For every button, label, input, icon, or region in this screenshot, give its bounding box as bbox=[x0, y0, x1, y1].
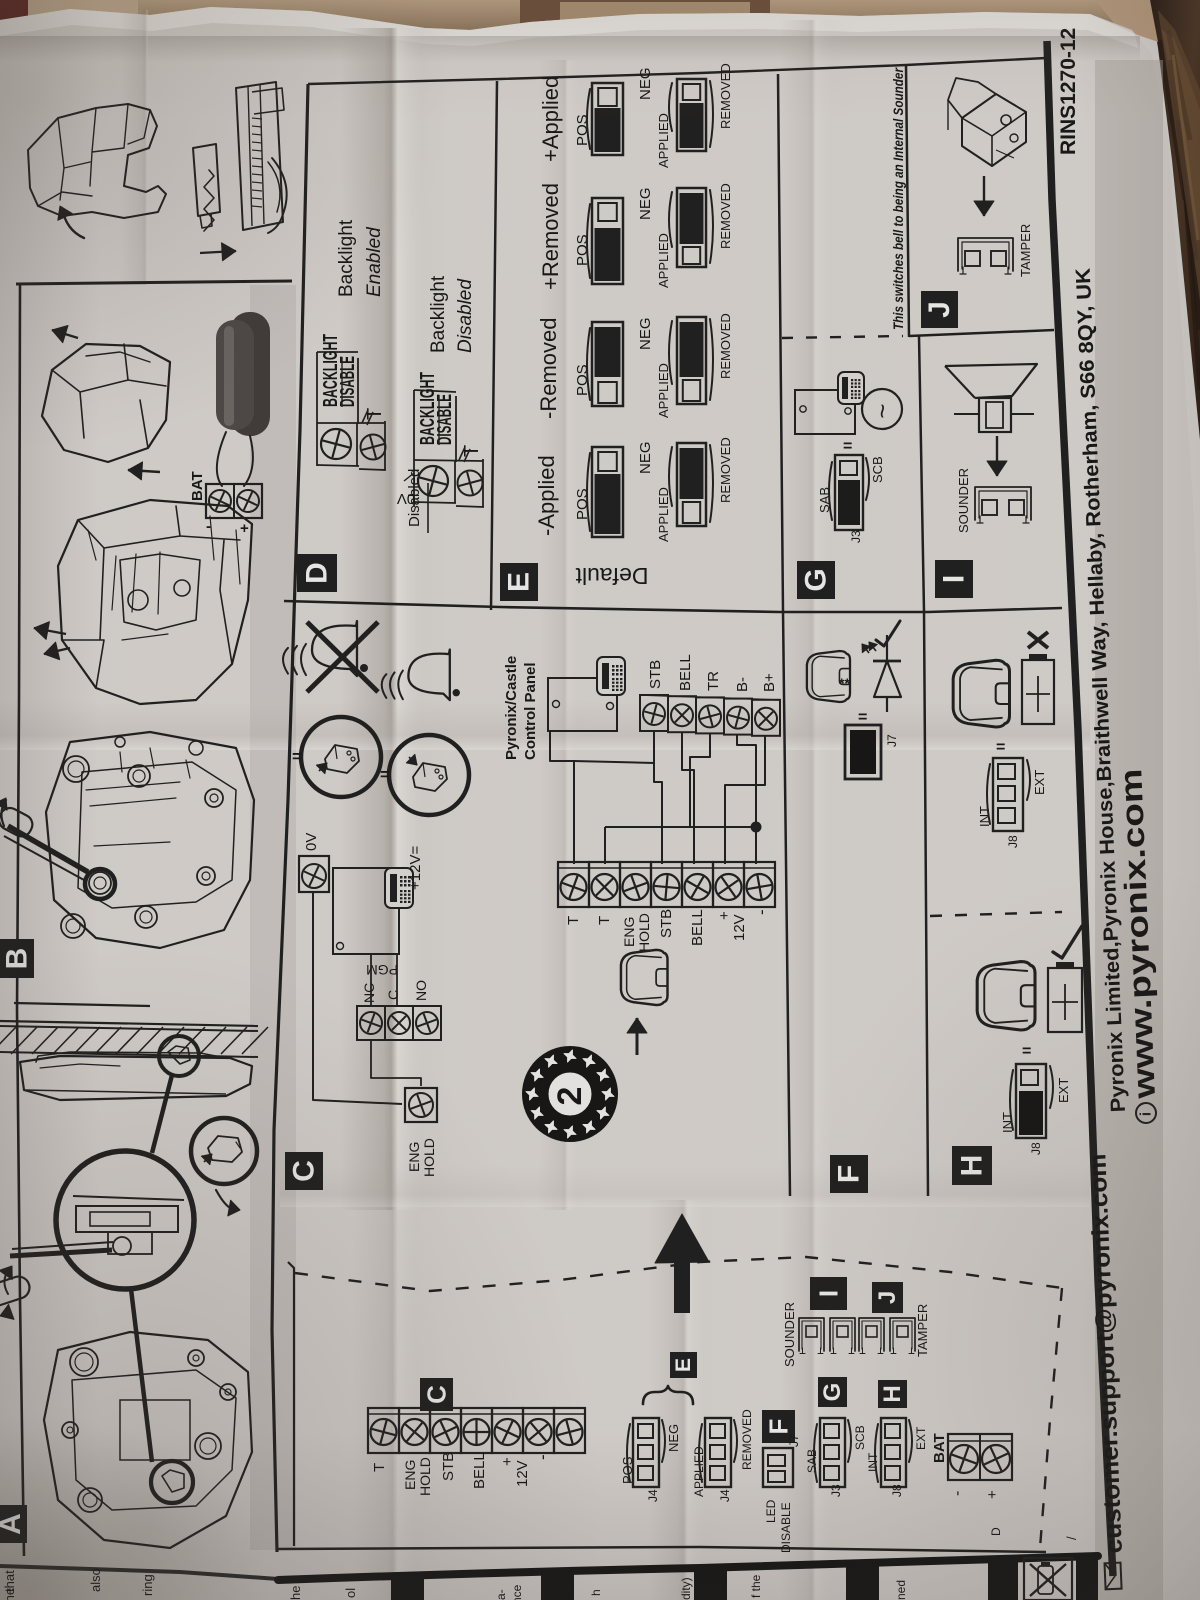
svg-text:D: D bbox=[989, 1527, 1003, 1536]
svg-text:Default: Default bbox=[575, 563, 648, 589]
svg-text:kg.: kg. bbox=[695, 1588, 709, 1600]
svg-text:nce: nce bbox=[510, 1584, 524, 1600]
svg-text:LED: LED bbox=[764, 1499, 778, 1523]
svg-text:-Removed: -Removed bbox=[536, 318, 561, 419]
svg-text:SCB: SCB bbox=[853, 1425, 867, 1450]
svg-text:T: T bbox=[596, 916, 613, 925]
svg-text:F: F bbox=[833, 1165, 866, 1183]
svg-text:h: h bbox=[589, 1589, 603, 1596]
svg-text:HOLD: HOLD bbox=[636, 913, 652, 952]
svg-text:STB: STB bbox=[658, 909, 675, 938]
svg-text:J8: J8 bbox=[1006, 835, 1020, 848]
svg-text:SOUNDER: SOUNDER bbox=[956, 468, 971, 533]
svg-text:APPLIED: APPLIED bbox=[656, 487, 671, 542]
svg-text:BELL: BELL bbox=[471, 1452, 488, 1489]
svg-text:REMOVED: REMOVED bbox=[718, 437, 733, 503]
svg-text:12V: 12V bbox=[731, 914, 748, 941]
svg-text:DISABLE: DISABLE bbox=[434, 394, 456, 445]
svg-text:Backlight: Backlight bbox=[336, 219, 357, 297]
svg-text:=: = bbox=[843, 438, 852, 455]
svg-text:also: also bbox=[88, 1568, 103, 1592]
svg-text:TAMPER: TAMPER bbox=[915, 1304, 930, 1357]
svg-text:RINS1270-12: RINS1270-12 bbox=[1057, 28, 1080, 155]
svg-text:=: = bbox=[996, 739, 1005, 756]
svg-text:APPLIED: APPLIED bbox=[656, 233, 671, 288]
svg-text:J4: J4 bbox=[718, 1489, 732, 1502]
svg-text:J: J bbox=[874, 1291, 901, 1304]
svg-text:NEG: NEG bbox=[637, 441, 654, 474]
svg-text:ENG: ENG bbox=[621, 917, 637, 947]
svg-text:f the: f the bbox=[749, 1574, 763, 1598]
svg-text:J: J bbox=[923, 301, 956, 318]
svg-text:STB: STB bbox=[440, 1452, 457, 1481]
svg-text:INT: INT bbox=[866, 1452, 880, 1472]
svg-text:12V: 12V bbox=[514, 1460, 531, 1487]
svg-text:Control Panel: Control Panel bbox=[522, 662, 539, 760]
svg-text:~: ~ bbox=[867, 403, 897, 418]
svg-text:B: B bbox=[1, 948, 34, 970]
svg-text:he: he bbox=[288, 1586, 303, 1600]
svg-text:STB: STB bbox=[647, 660, 664, 689]
svg-text:E: E bbox=[503, 572, 536, 592]
svg-text:i: i bbox=[1138, 1112, 1155, 1116]
svg-text:+12V=: +12V= bbox=[407, 846, 424, 890]
svg-text:EXT: EXT bbox=[1056, 1078, 1071, 1103]
svg-text:F: F bbox=[764, 1419, 794, 1435]
svg-text:B+: B+ bbox=[761, 673, 778, 692]
svg-text:TR: TR bbox=[705, 671, 722, 691]
svg-text:REMOVED: REMOVED bbox=[718, 183, 733, 249]
svg-text:C: C bbox=[422, 1385, 452, 1404]
svg-text:a-: a- bbox=[494, 1589, 508, 1600]
svg-text:EXT: EXT bbox=[914, 1426, 928, 1450]
svg-text:B-: B- bbox=[734, 677, 751, 692]
svg-text:I: I bbox=[938, 575, 971, 583]
svg-text:J3: J3 bbox=[829, 1484, 843, 1497]
svg-text:A: A bbox=[0, 1513, 27, 1535]
svg-text:APPLIED: APPLIED bbox=[656, 113, 671, 168]
svg-text:J7: J7 bbox=[787, 1434, 801, 1447]
svg-text:REMOVED: REMOVED bbox=[718, 63, 733, 129]
svg-text:NO: NO bbox=[413, 980, 429, 1001]
svg-text:C: C bbox=[385, 990, 401, 1000]
svg-text:DISABLE: DISABLE bbox=[337, 356, 359, 407]
svg-text:-: - bbox=[533, 1454, 552, 1460]
svg-text:=: = bbox=[292, 747, 302, 766]
svg-text:J8: J8 bbox=[890, 1484, 904, 1497]
svg-text:/: / bbox=[1064, 1536, 1079, 1540]
svg-text:DISABLE: DISABLE bbox=[779, 1502, 793, 1553]
svg-text:NEG: NEG bbox=[637, 187, 654, 220]
svg-text:BELL: BELL bbox=[677, 654, 694, 691]
svg-text:REMOVED: REMOVED bbox=[718, 313, 733, 379]
svg-text:BAT: BAT bbox=[189, 471, 206, 501]
svg-text:SOUNDER: SOUNDER bbox=[782, 1302, 797, 1367]
svg-text:the: the bbox=[2, 1588, 17, 1600]
svg-text:Pyronix/Castle: Pyronix/Castle bbox=[503, 656, 520, 760]
svg-text:ol: ol bbox=[343, 1588, 358, 1598]
svg-text:J4: J4 bbox=[646, 1489, 660, 1502]
svg-text:0V: 0V bbox=[303, 833, 320, 851]
svg-text:E: E bbox=[672, 1358, 695, 1372]
svg-text:**: ** bbox=[839, 675, 850, 691]
svg-text:+: + bbox=[984, 1490, 1001, 1499]
svg-text:ENG: ENG bbox=[402, 1460, 418, 1490]
svg-text:=: = bbox=[858, 709, 867, 726]
svg-text:I: I bbox=[814, 1290, 844, 1297]
svg-text:HOLD: HOLD bbox=[421, 1138, 437, 1177]
svg-text:NEG: NEG bbox=[666, 1424, 681, 1452]
svg-text:+Removed: +Removed bbox=[538, 183, 563, 290]
svg-text:T: T bbox=[461, 445, 483, 457]
svg-text:ENG: ENG bbox=[406, 1142, 422, 1172]
svg-text:BELL: BELL bbox=[689, 909, 706, 946]
svg-text:ned: ned bbox=[894, 1580, 908, 1600]
svg-text:d of: d of bbox=[851, 1579, 865, 1600]
svg-text:-: - bbox=[752, 909, 771, 915]
svg-text:T: T bbox=[371, 1463, 388, 1472]
svg-text:SCB: SCB bbox=[870, 456, 885, 483]
svg-text:REMOVED: REMOVED bbox=[740, 1409, 754, 1470]
svg-text:D: D bbox=[301, 562, 334, 584]
svg-text:H: H bbox=[879, 1385, 906, 1402]
svg-text:HOLD: HOLD bbox=[417, 1457, 433, 1496]
svg-text:NC: NC bbox=[361, 983, 377, 1003]
svg-text:SAB: SAB bbox=[805, 1449, 819, 1473]
svg-text:EXT: EXT bbox=[1032, 770, 1047, 795]
svg-text:Disabled: Disabled bbox=[455, 278, 476, 353]
svg-text:Enabled: Enabled bbox=[364, 226, 385, 297]
svg-text:Backlight: Backlight bbox=[428, 275, 449, 353]
svg-text:dity): dity) bbox=[679, 1577, 693, 1600]
svg-text:+Applied: +Applied bbox=[538, 76, 563, 162]
svg-text:2: 2 bbox=[551, 1087, 589, 1106]
svg-text:J3: J3 bbox=[849, 530, 863, 543]
svg-text:T: T bbox=[565, 916, 582, 925]
svg-text:H: H bbox=[956, 1155, 989, 1177]
svg-text:NEG: NEG bbox=[637, 317, 654, 350]
svg-text:This switches bell to being an: This switches bell to being an Internal … bbox=[891, 67, 906, 330]
svg-text:+: + bbox=[240, 520, 249, 537]
svg-text:ring: ring bbox=[140, 1574, 155, 1596]
svg-text:NEG: NEG bbox=[637, 67, 654, 100]
svg-text:-: - bbox=[949, 1491, 966, 1496]
svg-text:G: G bbox=[819, 1383, 846, 1402]
svg-text:=: = bbox=[380, 765, 390, 784]
svg-text:TAMPER: TAMPER bbox=[1018, 224, 1033, 277]
svg-text:BAT: BAT bbox=[931, 1433, 948, 1463]
svg-text:=: = bbox=[1022, 1043, 1031, 1060]
svg-text:J8: J8 bbox=[1029, 1142, 1043, 1155]
svg-text:G: G bbox=[800, 568, 833, 591]
svg-text:-Applied: -Applied bbox=[534, 455, 559, 536]
svg-text:T: T bbox=[364, 408, 386, 420]
svg-text:APPLIED: APPLIED bbox=[656, 363, 671, 418]
svg-text:C: C bbox=[288, 1160, 321, 1182]
svg-text:J7: J7 bbox=[885, 734, 899, 747]
